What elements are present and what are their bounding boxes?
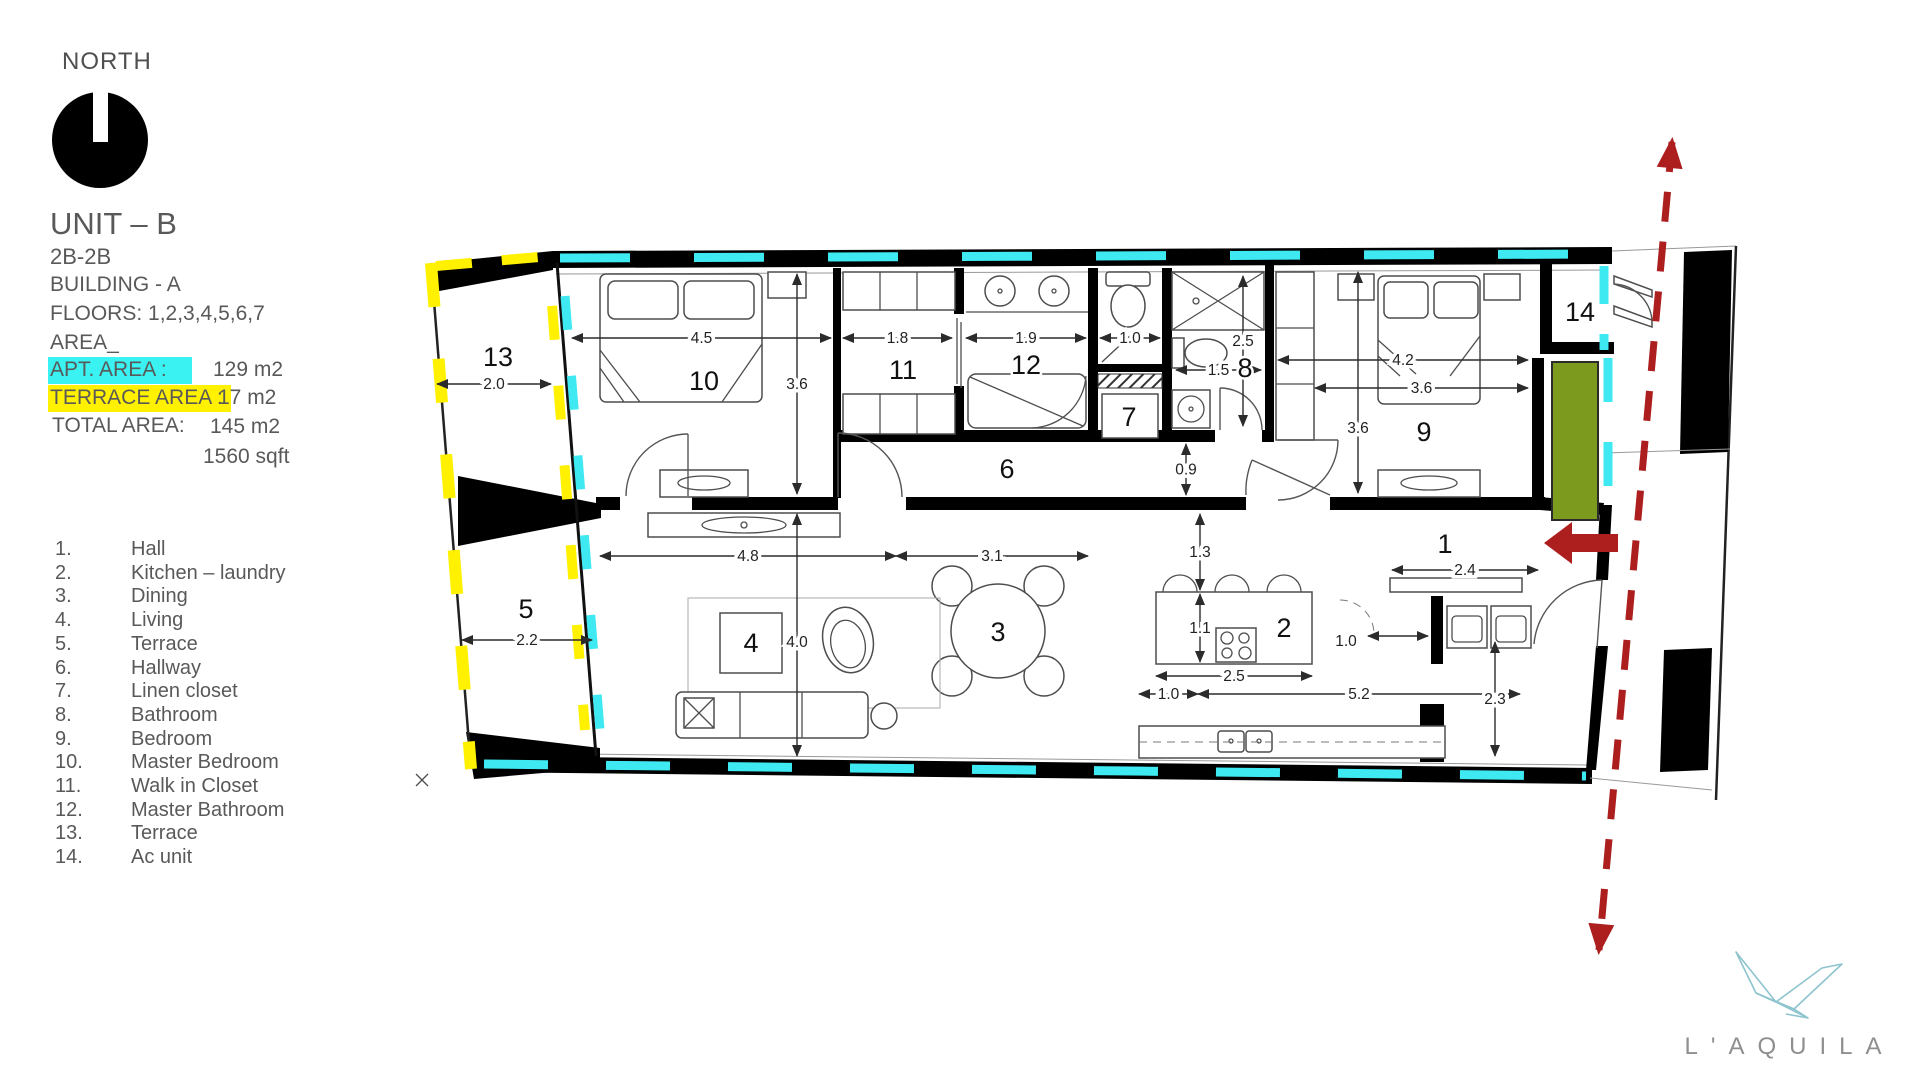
room-label-9: 9 (1416, 417, 1431, 447)
dimension-label: 4.0 (786, 634, 808, 651)
dimension-label: 2.5 (1232, 333, 1254, 350)
dimension-label: 2.4 (1454, 562, 1476, 579)
sink-icon (1172, 390, 1210, 428)
toilet-icon (1102, 272, 1150, 362)
dimension-label: 1.0 (1158, 686, 1180, 703)
shower-icon (1172, 272, 1264, 330)
brand-logo: L'AQUILA (1668, 948, 1898, 1061)
sliding-door-icon (957, 318, 961, 388)
room-label-1: 1 (1437, 529, 1452, 559)
dimension-label: 3.1 (981, 548, 1003, 565)
dimension-label: 1.5 (1208, 362, 1230, 379)
tv-cabinet-icon (648, 513, 840, 537)
dimension-label: 2.0 (483, 376, 505, 393)
dimension-label: 0.9 (1175, 462, 1197, 479)
dimension-label: 2.3 (1484, 691, 1506, 708)
room-label-12: 12 (1011, 350, 1041, 380)
dimension-label: 1.0 (1119, 330, 1141, 347)
room-label-10: 10 (689, 366, 719, 396)
brand-logo-bird-icon (1698, 948, 1868, 1026)
brand-name: L'AQUILA (1668, 1033, 1898, 1061)
kitchen-counter-icon (1139, 726, 1445, 758)
dimension-label: 3.6 (1411, 380, 1433, 397)
room-label-14: 14 (1565, 297, 1595, 327)
dimension-label: 4.8 (737, 548, 759, 565)
dimension-label: 2.2 (516, 632, 538, 649)
dimension-label: 2.5 (1223, 668, 1245, 685)
room-label-8: 8 (1237, 353, 1252, 383)
room-label-4: 4 (743, 628, 758, 658)
closet-icon (1276, 272, 1314, 440)
room-label-5: 5 (518, 594, 533, 624)
room-label-2: 2 (1276, 613, 1291, 643)
dimension-label: 1.9 (1015, 330, 1037, 347)
hall-bench-icon (1390, 578, 1522, 592)
dimension-label: 1.1 (1189, 620, 1211, 637)
dimension-label: 4.2 (1392, 352, 1414, 369)
appliance-column-icon (1447, 606, 1531, 648)
living-set-icon (676, 598, 940, 738)
dimension-label: 5.2 (1348, 686, 1370, 703)
dresser2-icon (1378, 470, 1480, 497)
dimension-label: 1.3 (1189, 544, 1211, 561)
wardrobe-icon (843, 272, 955, 434)
planter (1552, 362, 1598, 520)
dresser-icon (660, 470, 748, 497)
dimension-label: 1.8 (887, 330, 909, 347)
dimension-label: 1.0 (1335, 633, 1357, 650)
room-label-6: 6 (999, 454, 1014, 484)
pantry-door-icon (1340, 600, 1374, 634)
ac-louver-doors-icon (1614, 276, 1652, 327)
slide: NORTH UNIT – B 2B-2B BUILDING - A FLOORS… (0, 0, 1920, 1080)
room-label-7: 7 (1121, 402, 1136, 432)
corner-mark (416, 774, 428, 786)
dimension-label: 4.5 (691, 330, 713, 347)
bathtub-icon (968, 374, 1086, 428)
room-label-3: 3 (990, 617, 1005, 647)
dimension-label: 3.6 (1347, 420, 1369, 437)
dimension-label: 3.6 (786, 376, 808, 393)
double-sink-icon (966, 276, 1088, 312)
room-label-13: 13 (483, 342, 513, 372)
floor-plan: 2.04.53.61.81.91.02.51.54.23.63.60.94.83… (0, 0, 1920, 1080)
building-core (1590, 246, 1736, 800)
room-label-11: 11 (889, 355, 917, 385)
